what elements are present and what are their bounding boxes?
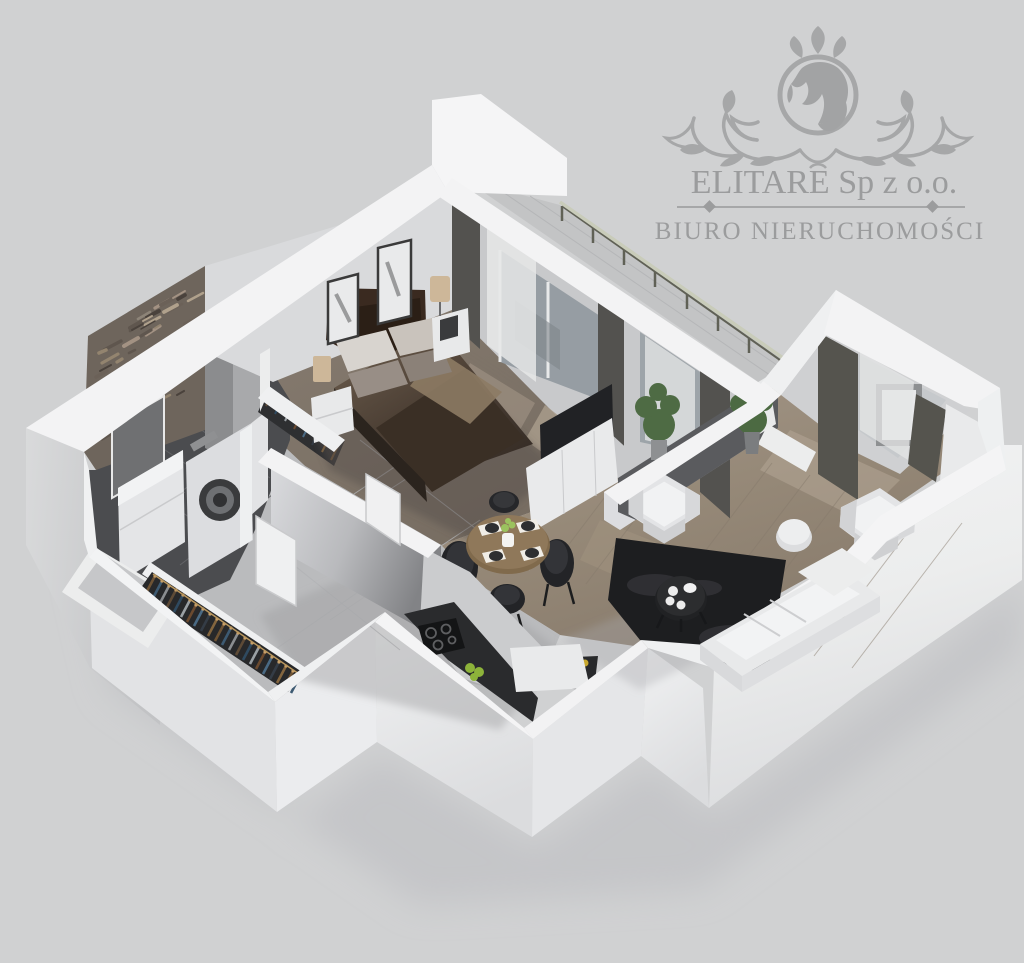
svg-text:ELITARE Sp z o.o.: ELITARE Sp z o.o. bbox=[691, 164, 957, 201]
svg-text:BIURO NIERUCHOMOŚCI: BIURO NIERUCHOMOŚCI bbox=[655, 217, 985, 245]
